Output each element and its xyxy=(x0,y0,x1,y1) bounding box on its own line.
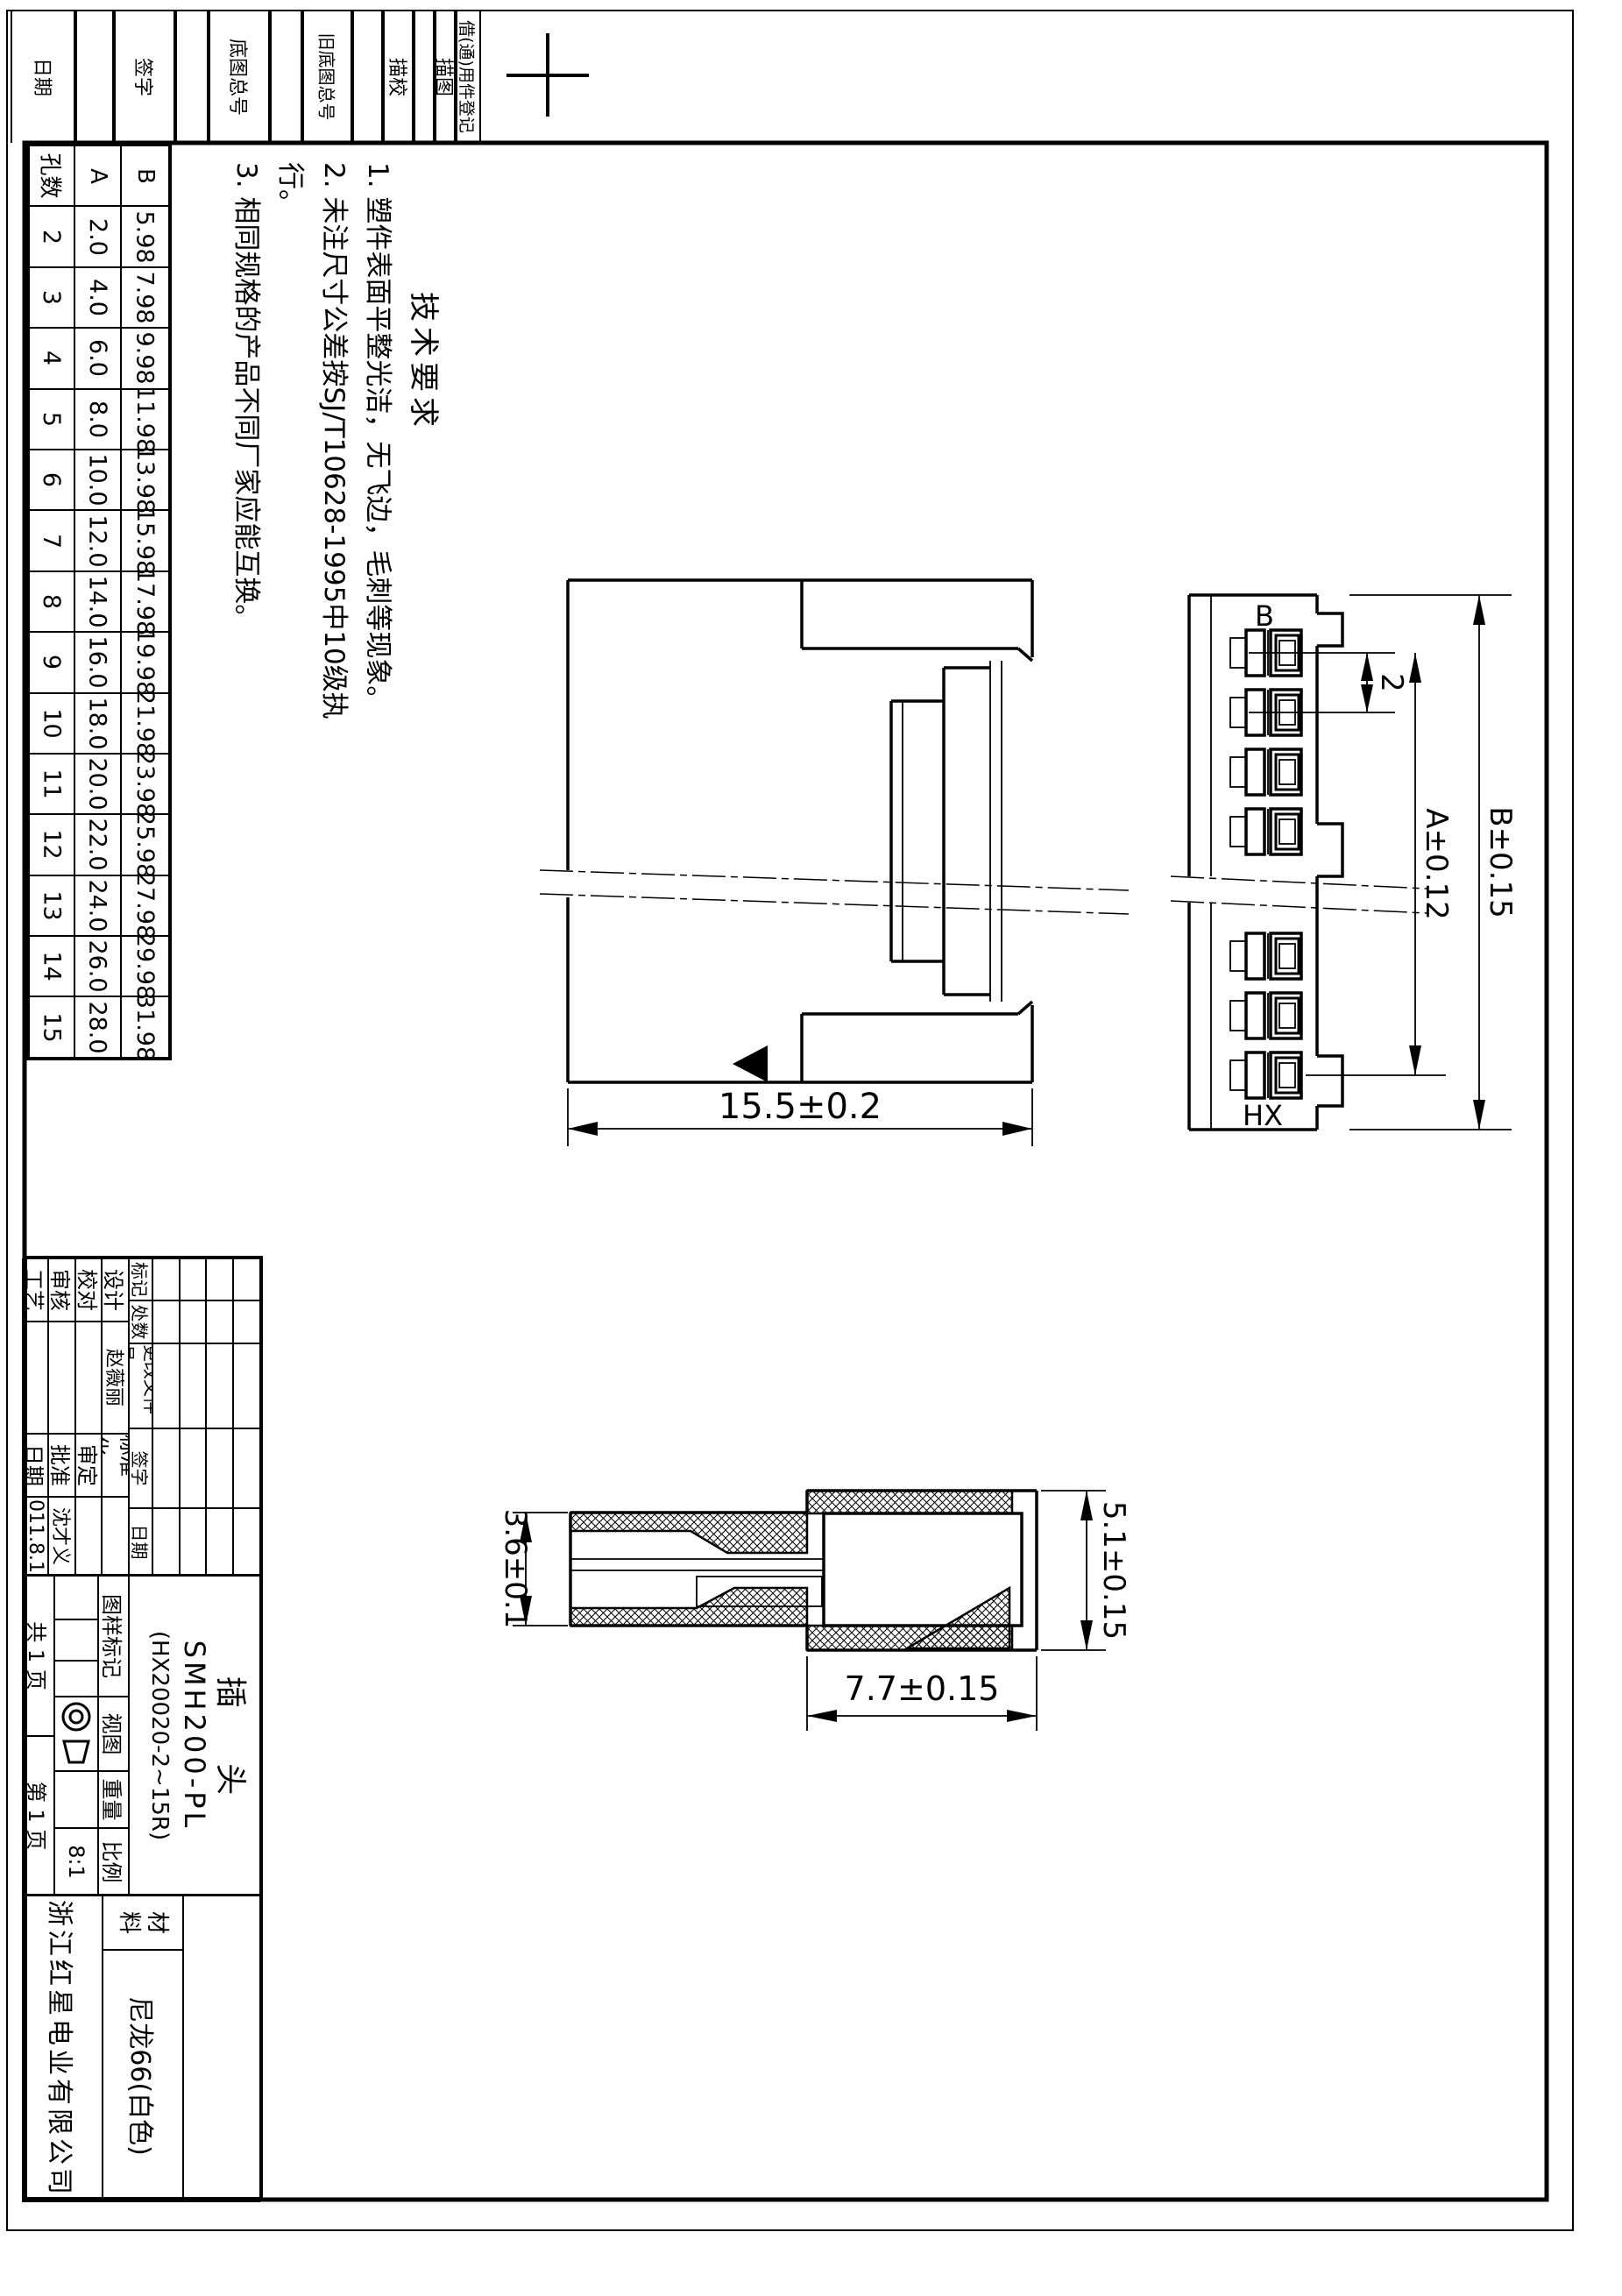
dim-sec-right-lines xyxy=(1041,1491,1106,1650)
part-model: SMH200-PL xyxy=(177,1641,212,1832)
sig-cell-name2: 沈才义 xyxy=(49,1497,76,1576)
hole-table-cell: 23.98 xyxy=(121,754,169,814)
strip-cell-sign: 签字 xyxy=(112,11,177,143)
hole-table-cell: 2.0 xyxy=(74,206,121,266)
dim-sec-left: 3.6±0.1 xyxy=(498,1509,533,1629)
scale-label: 比例 xyxy=(98,1828,129,1896)
view-label: 视图 xyxy=(98,1697,129,1771)
page-no: 第 1 页 xyxy=(22,1736,54,1896)
dim-main-width: 15.5±0.2 xyxy=(719,1087,882,1127)
sig-cell-label: 审核 xyxy=(49,1258,76,1322)
revision-cell xyxy=(180,1508,207,1576)
tech-req-item: 2. 未注尺寸公差按SJ/T10628-1995中10级执行。 xyxy=(268,162,356,723)
tech-req-item: 1. 塑件表面平整光洁，无飞边，毛刺等现象。 xyxy=(356,162,400,723)
hole-table-cell: 15 xyxy=(29,996,74,1057)
label-b: B xyxy=(1255,599,1274,633)
strip-cell-trace-check: 描校 xyxy=(381,11,415,143)
tech-req-title: 技术要求 xyxy=(400,162,447,723)
revision-cell xyxy=(152,1508,180,1576)
drawing-sheet: 15.5±0.2 B HX 2 A±0.12 B±0.15 3.6±0.1 5.… xyxy=(0,0,1622,2296)
hole-table-cell: 8.0 xyxy=(74,389,121,450)
revision-cell xyxy=(152,1428,180,1508)
pin-cavity-part xyxy=(1279,944,1295,968)
hole-table-cell: 6.0 xyxy=(74,328,121,388)
sig-cell-label2: 日期 xyxy=(22,1434,49,1497)
mark-value-cell xyxy=(54,1661,98,1697)
dim-sec-right: 5.1±0.15 xyxy=(1096,1501,1131,1640)
pin-cavity-part xyxy=(1230,638,1246,668)
sig-cell-name2 xyxy=(103,1497,130,1576)
hole-table-cell: 5 xyxy=(29,389,74,450)
centering-mark-icon xyxy=(506,33,589,117)
pin-cavity-part xyxy=(1279,760,1295,784)
hole-table-cell: 16.0 xyxy=(74,632,121,692)
strip-cell-empty xyxy=(174,11,210,143)
strip-cell-empty xyxy=(268,11,304,143)
rev-header: 日期 xyxy=(129,1508,152,1576)
revision-cell xyxy=(152,1300,180,1343)
pin-cavity-part xyxy=(1230,757,1246,787)
hole-table-cell: 27.98 xyxy=(121,875,169,936)
hole-table-cell: 12 xyxy=(29,814,74,875)
pages-total: 共 1 页 xyxy=(22,1576,54,1736)
hole-table-cell: 10.0 xyxy=(74,450,121,510)
sig-cell-name xyxy=(75,1322,103,1434)
revision-cell xyxy=(207,1258,234,1300)
hole-table-cell: 28.0 xyxy=(74,996,121,1057)
pin-cavity-part xyxy=(1279,1003,1295,1028)
pin-cavity-part xyxy=(1246,809,1264,854)
sig-cell-label2: 标准化 xyxy=(103,1434,130,1497)
sig-cell-name2 xyxy=(75,1497,103,1576)
projection-symbol-cell xyxy=(54,1697,98,1771)
side-view-break-lines xyxy=(540,870,1129,914)
hole-table-header: B xyxy=(121,145,169,206)
mark-label: 图样标记 xyxy=(98,1576,129,1697)
sig-cell-label2: 批准 xyxy=(49,1434,76,1497)
revision-cell xyxy=(207,1508,234,1576)
label-hx: HX xyxy=(1243,1099,1283,1132)
sig-cell-name: 赵薇丽 xyxy=(103,1322,130,1434)
hole-table-cell: 31.98 xyxy=(121,996,169,1057)
strip-cell-borrow-record: 借(通)用件登记 xyxy=(454,11,481,143)
pin-cavity-part xyxy=(1230,1001,1246,1031)
dim-a: A±0.12 xyxy=(1419,808,1454,919)
revision-cell xyxy=(152,1258,180,1300)
section-view xyxy=(570,1491,1037,1650)
hole-table-cell: 24.0 xyxy=(74,875,121,936)
hole-table-cell: 12.0 xyxy=(74,510,121,570)
rev-header: 更改文件号 xyxy=(129,1343,152,1428)
revision-cell xyxy=(233,1258,260,1300)
company-name: 浙江红星电业有限公司 xyxy=(22,1896,103,2202)
drawing-no-cell xyxy=(183,1896,260,2202)
mark-value-cell xyxy=(54,1576,98,1619)
revision-cell xyxy=(207,1300,234,1343)
hole-table-cell: 11.98 xyxy=(121,389,169,450)
projection-angle-icon xyxy=(57,1699,96,1769)
separator xyxy=(22,1894,260,1896)
separator xyxy=(22,1574,260,1577)
weight-label: 重量 xyxy=(98,1771,129,1828)
hole-table-cell: 14.0 xyxy=(74,571,121,632)
material-value: 尼龙66(白色) xyxy=(103,1950,183,2202)
material-label: 材料 xyxy=(115,1905,171,1940)
hole-table-cell: 9 xyxy=(29,632,74,692)
tech-req-item: 3. 相同规格的产品不同厂家应能互换。 xyxy=(224,162,268,723)
hole-table-cell: 4 xyxy=(29,328,74,388)
sig-cell-label: 设计 xyxy=(103,1258,130,1322)
strip-cell-old-master-no: 旧底图总号 xyxy=(301,11,354,143)
revision-cell xyxy=(180,1428,207,1508)
sig-cell-label2: 审定 xyxy=(75,1434,103,1497)
tech-requirements: 技术要求 1. 塑件表面平整光洁，无飞边，毛刺等现象。 2. 未注尺寸公差按SJ… xyxy=(245,162,447,723)
hole-table-cell: 2 xyxy=(29,206,74,266)
strip-cell-date: 日期 xyxy=(11,11,77,143)
side-view-thin-lines xyxy=(903,661,1002,1002)
hole-table-cell: 6 xyxy=(29,450,74,510)
revision-cell xyxy=(152,1343,180,1428)
strip-cell-empty xyxy=(74,11,116,143)
hole-table-cell: 13 xyxy=(29,875,74,936)
pin-cavity-part xyxy=(1279,819,1295,844)
hole-table-cell: 9.98 xyxy=(121,328,169,388)
latch-arrow-icon xyxy=(733,1045,768,1082)
hole-table-cell: 4.0 xyxy=(74,267,121,328)
sig-cell-label: 工艺 xyxy=(22,1258,49,1322)
sig-cell-name xyxy=(49,1322,76,1434)
front-view-break-lines xyxy=(1171,876,1427,913)
pin-cavity-part xyxy=(1246,749,1264,795)
part-name-cell: 插 头 SMH200-PL (HX20020-2~15R) xyxy=(129,1576,260,1896)
pin-cavity-part xyxy=(1230,698,1246,727)
hole-table-header: A xyxy=(74,145,121,206)
revision-cell xyxy=(207,1343,234,1428)
hole-table-cell: 5.98 xyxy=(121,206,169,266)
revision-cell xyxy=(180,1258,207,1300)
hole-table-cell: 17.98 xyxy=(121,571,169,632)
pin-cavity-part xyxy=(1246,1052,1264,1098)
pin-cavities xyxy=(1230,630,1301,1098)
weight-value-cell xyxy=(54,1771,98,1828)
pin-cavity-part xyxy=(1246,993,1264,1038)
revision-cell xyxy=(207,1428,234,1508)
hole-count-table: 孔数AB22.05.9834.07.9846.09.9858.011.98610… xyxy=(26,143,172,1060)
hole-table-cell: 10 xyxy=(29,693,74,754)
pin-cavity-part xyxy=(1230,941,1246,971)
revision-cell xyxy=(233,1300,260,1343)
revision-cell xyxy=(180,1343,207,1428)
pin-cavity-part xyxy=(1230,817,1246,847)
pin-cavity-part xyxy=(1246,933,1264,979)
scale-value: 8:1 xyxy=(54,1828,98,1896)
pin-cavity-part xyxy=(1230,1060,1246,1090)
hole-table-header: 孔数 xyxy=(29,145,74,206)
sig-cell-label: 校对 xyxy=(75,1258,103,1322)
hole-table-cell: 21.98 xyxy=(121,693,169,754)
hole-table-cell: 7 xyxy=(29,510,74,570)
revision-cell xyxy=(233,1508,260,1576)
hole-table-cell: 11 xyxy=(29,754,74,814)
revision-cell xyxy=(233,1343,260,1428)
hole-table-cell: 8 xyxy=(29,571,74,632)
mark-value-cell xyxy=(54,1619,98,1661)
hole-table-cell: 14 xyxy=(29,936,74,996)
hole-table-cell: 29.98 xyxy=(121,936,169,996)
hole-table-cell: 15.98 xyxy=(121,510,169,570)
hole-table-cell: 13.98 xyxy=(121,450,169,510)
hole-table-cell: 19.98 xyxy=(121,632,169,692)
hole-table-cell: 20.0 xyxy=(74,754,121,814)
hole-table-cell: 25.98 xyxy=(121,814,169,875)
pin-cavity-part xyxy=(1279,1063,1295,1088)
revision-cell xyxy=(233,1428,260,1508)
hole-table-cell: 22.0 xyxy=(74,814,121,875)
hole-table-cell: 18.0 xyxy=(74,693,121,754)
dim-b: B±0.15 xyxy=(1483,806,1518,918)
strip-cell-master-no: 底图总号 xyxy=(207,11,272,143)
hole-table-cell: 3 xyxy=(29,267,74,328)
part-spec: (HX20020-2~15R) xyxy=(142,1631,177,1840)
part-name: 插 头 xyxy=(212,1654,247,1818)
dim-pitch: 2 xyxy=(1374,673,1409,692)
material-label-cell: 材料 xyxy=(103,1896,183,1950)
hole-table-cell: 26.0 xyxy=(74,936,121,996)
sig-cell-name2: 2011.8.15 xyxy=(22,1497,49,1576)
dim-sec-width: 7.7±0.15 xyxy=(845,1669,1000,1708)
side-view-outline xyxy=(568,580,1032,1082)
rev-header: 标记 xyxy=(129,1258,152,1300)
hole-table-cell: 7.98 xyxy=(121,267,169,328)
strip-cell-empty xyxy=(351,11,385,143)
revision-cell xyxy=(180,1300,207,1343)
rev-header: 处数 xyxy=(129,1300,152,1343)
sig-cell-name xyxy=(22,1322,49,1434)
rev-header: 签字 xyxy=(129,1428,152,1508)
